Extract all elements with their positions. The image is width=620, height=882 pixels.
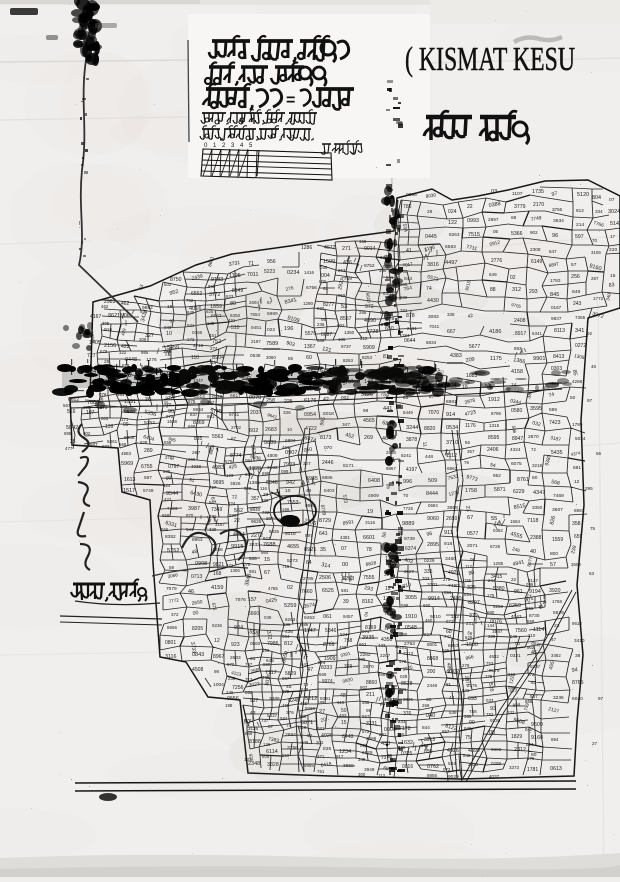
svg-text:681: 681	[573, 465, 581, 471]
svg-text:806: 806	[319, 279, 327, 284]
svg-text:3024: 3024	[608, 209, 620, 215]
svg-text:1517: 1517	[123, 488, 135, 494]
svg-text:8868: 8868	[427, 656, 438, 662]
svg-text:1829: 1829	[511, 734, 522, 740]
svg-text:277: 277	[102, 444, 110, 449]
svg-text:256: 256	[571, 274, 580, 280]
svg-text:4983: 4983	[212, 465, 224, 471]
svg-text:758: 758	[344, 638, 353, 644]
svg-text:357: 357	[467, 449, 475, 454]
svg-text:488: 488	[261, 498, 269, 503]
svg-text:2785: 2785	[303, 576, 314, 581]
svg-text:279: 279	[462, 663, 470, 668]
svg-text:68: 68	[511, 215, 517, 221]
svg-text:894: 894	[551, 737, 559, 742]
svg-text:06: 06	[470, 557, 476, 562]
svg-text:4090: 4090	[364, 318, 376, 324]
svg-text:8179: 8179	[489, 668, 500, 673]
svg-text:584: 584	[280, 716, 288, 721]
svg-text:78: 78	[366, 547, 372, 553]
svg-text:923: 923	[231, 642, 240, 648]
svg-text:9618: 9618	[572, 621, 582, 626]
svg-text:300: 300	[358, 772, 366, 777]
svg-text:848: 848	[464, 726, 472, 731]
svg-text:1500: 1500	[466, 642, 478, 648]
svg-text:881: 881	[207, 414, 215, 419]
svg-text:8795: 8795	[491, 411, 502, 416]
svg-text:928: 928	[140, 440, 148, 445]
svg-text:85: 85	[571, 369, 578, 376]
svg-text:491: 491	[399, 645, 407, 650]
svg-text:9901: 9901	[533, 356, 545, 362]
svg-text:46: 46	[591, 364, 597, 369]
svg-text:287: 287	[192, 450, 200, 456]
svg-text:1350: 1350	[344, 330, 355, 335]
svg-text:155: 155	[464, 578, 472, 583]
svg-text:3772: 3772	[209, 292, 220, 298]
svg-text:669: 669	[319, 672, 327, 677]
svg-text:169: 169	[262, 648, 270, 653]
svg-text:737: 737	[261, 718, 269, 723]
svg-text:324: 324	[228, 501, 236, 506]
svg-text:53: 53	[341, 304, 347, 310]
svg-text:7256: 7256	[232, 685, 244, 691]
svg-text:5437: 5437	[267, 713, 278, 718]
svg-text:835: 835	[194, 436, 203, 442]
svg-text:539: 539	[449, 710, 457, 715]
svg-text:598: 598	[401, 603, 409, 608]
svg-text:03: 03	[491, 189, 497, 195]
svg-text:659: 659	[574, 534, 583, 540]
svg-text:028: 028	[400, 674, 408, 679]
svg-text:3373: 3373	[509, 765, 520, 770]
svg-text:3948: 3948	[364, 767, 375, 772]
svg-text:334: 334	[595, 209, 603, 214]
svg-text:5576: 5576	[305, 331, 316, 337]
svg-text:59: 59	[169, 565, 175, 570]
svg-text:514: 514	[610, 221, 619, 227]
svg-text:5435: 5435	[551, 450, 563, 456]
svg-text:727: 727	[87, 353, 96, 359]
svg-text:285: 285	[359, 310, 367, 315]
svg-text:3826: 3826	[230, 481, 241, 486]
svg-text:595: 595	[163, 469, 171, 474]
svg-text:9183: 9183	[211, 277, 223, 283]
svg-text:02: 02	[510, 275, 516, 281]
svg-text:8241: 8241	[401, 453, 412, 458]
svg-text:332: 332	[507, 710, 515, 715]
svg-text:3055: 3055	[405, 595, 417, 601]
svg-text:3634: 3634	[553, 218, 564, 224]
svg-text:567: 567	[63, 403, 71, 408]
svg-text:271: 271	[342, 246, 351, 252]
svg-text:3710: 3710	[446, 440, 458, 446]
svg-text:2895: 2895	[427, 542, 439, 548]
svg-text:9014: 9014	[364, 246, 376, 252]
svg-text:379: 379	[469, 613, 478, 619]
svg-text:=: =	[286, 92, 295, 109]
svg-text:80: 80	[532, 475, 538, 481]
svg-text:679: 679	[100, 349, 108, 354]
svg-text:575: 575	[225, 459, 233, 464]
svg-text:05: 05	[493, 229, 499, 234]
svg-text:1367: 1367	[304, 344, 316, 350]
svg-text:02: 02	[287, 585, 293, 591]
svg-text:812: 812	[576, 208, 584, 213]
svg-text:2071: 2071	[467, 543, 478, 549]
svg-text:8621: 8621	[108, 313, 120, 319]
svg-text:033: 033	[486, 698, 494, 703]
svg-text:5909: 5909	[363, 345, 375, 351]
svg-text:775: 775	[485, 674, 493, 679]
svg-text:7118: 7118	[527, 518, 538, 524]
svg-text:4043: 4043	[511, 614, 522, 619]
svg-text:641: 641	[319, 531, 328, 537]
svg-text:09: 09	[123, 422, 129, 428]
svg-text:97: 97	[587, 398, 593, 403]
svg-text:236: 236	[317, 322, 325, 327]
svg-text:895: 895	[64, 431, 72, 436]
svg-text:376: 376	[403, 711, 412, 717]
svg-text:713: 713	[245, 677, 253, 682]
svg-text:8730: 8730	[529, 613, 540, 618]
svg-text:4159: 4159	[211, 585, 223, 591]
svg-text:60: 60	[306, 355, 312, 361]
svg-text:112: 112	[465, 564, 473, 569]
svg-text:3486: 3486	[269, 696, 280, 702]
svg-text:742: 742	[444, 634, 452, 639]
svg-text:703: 703	[422, 576, 430, 581]
svg-text:7725: 7725	[403, 506, 414, 511]
svg-text:376: 376	[286, 710, 294, 715]
svg-text:914: 914	[446, 412, 455, 418]
svg-text:6259: 6259	[509, 603, 521, 609]
svg-text:4347: 4347	[533, 490, 545, 496]
svg-text:2406: 2406	[487, 447, 499, 453]
svg-text:1004: 1004	[213, 682, 224, 688]
svg-text:107: 107	[86, 410, 95, 416]
svg-text:927: 927	[250, 698, 259, 704]
svg-text:0843: 0843	[192, 652, 204, 658]
svg-text:741: 741	[209, 514, 217, 519]
svg-text:079: 079	[243, 562, 251, 567]
svg-text:200: 200	[427, 669, 436, 675]
svg-text:275: 275	[443, 577, 451, 582]
svg-text:295: 295	[585, 486, 593, 491]
svg-text:27: 27	[592, 741, 598, 746]
svg-text:8967: 8967	[213, 654, 224, 660]
svg-text:291: 291	[379, 732, 387, 737]
svg-text:1290: 1290	[303, 301, 314, 306]
svg-text:050: 050	[360, 743, 368, 748]
svg-text:44: 44	[449, 695, 455, 700]
svg-text:8947: 8947	[512, 436, 523, 442]
svg-text:81: 81	[446, 682, 452, 687]
svg-text:6229: 6229	[513, 489, 525, 495]
svg-text:6981: 6981	[446, 399, 457, 405]
svg-text:1107: 1107	[512, 191, 523, 197]
svg-text:8769: 8769	[323, 642, 335, 648]
svg-text:3859: 3859	[343, 763, 354, 769]
svg-text:1781: 1781	[527, 767, 538, 773]
svg-text:287: 287	[591, 276, 599, 281]
svg-text:541: 541	[186, 527, 194, 532]
svg-text:902: 902	[530, 230, 538, 235]
svg-text:0907: 0907	[285, 450, 297, 456]
svg-text:57: 57	[550, 562, 556, 568]
svg-text:15: 15	[610, 273, 616, 279]
svg-text:566: 566	[119, 442, 127, 447]
svg-text:3301: 3301	[427, 582, 438, 588]
svg-text:2308: 2308	[530, 247, 541, 252]
svg-text:67: 67	[467, 515, 473, 521]
svg-text:211: 211	[366, 692, 375, 698]
svg-text:75: 75	[590, 526, 596, 531]
svg-text:72: 72	[531, 447, 536, 452]
svg-text:067: 067	[282, 676, 290, 681]
svg-text:689: 689	[317, 338, 325, 343]
svg-text:5346: 5346	[325, 628, 336, 634]
svg-text:312: 312	[512, 287, 521, 293]
svg-text:35: 35	[70, 439, 76, 445]
svg-text:144: 144	[487, 623, 495, 628]
svg-text:9102: 9102	[447, 669, 459, 675]
svg-text:660: 660	[423, 603, 431, 608]
svg-text:693: 693	[468, 696, 477, 702]
svg-text:8413: 8413	[553, 354, 564, 360]
svg-text:75: 75	[465, 735, 471, 741]
svg-text:597: 597	[144, 475, 152, 480]
svg-text:6552: 6552	[191, 291, 202, 297]
svg-text:12: 12	[574, 479, 580, 485]
svg-text:18: 18	[167, 304, 173, 310]
svg-text:3350: 3350	[532, 505, 543, 510]
svg-text:804: 804	[592, 195, 601, 201]
svg-text:448: 448	[425, 454, 433, 460]
svg-text:981: 981	[249, 569, 257, 574]
svg-text:236: 236	[228, 676, 236, 681]
svg-text:460: 460	[425, 618, 433, 623]
svg-text:658: 658	[162, 513, 170, 518]
svg-text:3116: 3116	[365, 520, 375, 525]
svg-text:842: 842	[463, 753, 471, 758]
svg-text:5677: 5677	[469, 344, 480, 350]
svg-text:335: 335	[424, 569, 433, 575]
svg-text:647: 647	[549, 249, 557, 254]
svg-text:668: 668	[188, 424, 196, 429]
svg-text:175: 175	[487, 593, 495, 598]
svg-text:433: 433	[378, 643, 386, 648]
svg-text:263: 263	[338, 268, 346, 273]
svg-text:9915: 9915	[231, 544, 243, 550]
svg-text:98: 98	[214, 669, 220, 674]
svg-text:8601: 8601	[427, 642, 438, 647]
svg-text:1315: 1315	[489, 423, 500, 428]
svg-text:23: 23	[464, 505, 471, 512]
svg-text:867: 867	[442, 729, 450, 734]
svg-text:7469: 7469	[553, 493, 564, 499]
svg-text:71: 71	[248, 261, 254, 267]
svg-text:3888: 3888	[366, 736, 377, 741]
svg-text:17: 17	[610, 234, 616, 239]
svg-text:3607: 3607	[552, 507, 563, 513]
svg-text:0993: 0993	[467, 218, 479, 224]
svg-text:581: 581	[341, 588, 349, 593]
svg-text:061: 061	[323, 614, 332, 620]
svg-text:3920: 3920	[549, 588, 561, 594]
svg-text:2870: 2870	[528, 434, 539, 440]
svg-text:5120: 5120	[577, 192, 589, 198]
svg-text:3779: 3779	[514, 204, 526, 210]
svg-text:7365: 7365	[575, 315, 586, 320]
svg-text:477: 477	[65, 446, 73, 451]
svg-text:961: 961	[514, 589, 523, 595]
svg-text:365: 365	[464, 714, 472, 719]
svg-text:9867: 9867	[386, 466, 396, 471]
svg-text:7515: 7515	[468, 232, 480, 238]
svg-text:567: 567	[209, 500, 217, 505]
svg-text:179: 179	[462, 677, 470, 682]
svg-text:8761: 8761	[517, 477, 529, 483]
svg-text:5969: 5969	[121, 461, 133, 467]
svg-text:07: 07	[609, 197, 615, 203]
svg-text:4655: 4655	[287, 544, 299, 550]
svg-text:7660: 7660	[301, 589, 313, 595]
svg-text:166: 166	[282, 507, 290, 512]
svg-text:6829: 6829	[362, 750, 373, 755]
svg-text:308: 308	[139, 337, 147, 342]
svg-text:684: 684	[464, 592, 472, 597]
svg-text:929: 929	[244, 486, 252, 491]
svg-text:289: 289	[144, 448, 153, 454]
svg-text:8956: 8956	[427, 773, 438, 778]
svg-text:059: 059	[338, 293, 346, 298]
svg-text:989: 989	[263, 662, 271, 667]
svg-text:516: 516	[67, 409, 76, 415]
svg-text:269: 269	[422, 703, 430, 708]
svg-text:802: 802	[337, 323, 345, 328]
svg-text:7213: 7213	[403, 651, 414, 656]
svg-text:1306: 1306	[230, 568, 240, 573]
svg-text:558: 558	[527, 619, 535, 624]
svg-text:845: 845	[550, 292, 559, 298]
svg-text:094: 094	[245, 458, 253, 463]
svg-text:597: 597	[575, 234, 584, 240]
svg-text:231: 231	[466, 621, 474, 626]
svg-text:327: 327	[145, 333, 154, 339]
svg-text:0392: 0392	[493, 528, 503, 533]
svg-text:4381: 4381	[340, 535, 351, 540]
svg-text:207: 207	[266, 516, 274, 521]
svg-text:220: 220	[609, 247, 617, 253]
svg-text:139: 139	[105, 424, 114, 430]
svg-text:3935: 3935	[362, 635, 374, 641]
svg-text:5353: 5353	[144, 420, 155, 426]
svg-text:8113: 8113	[554, 328, 565, 334]
svg-text:7070: 7070	[428, 410, 439, 416]
svg-text:0167: 0167	[551, 305, 562, 310]
svg-text:366: 366	[378, 672, 386, 677]
svg-text:5449: 5449	[403, 410, 413, 415]
svg-text:98: 98	[363, 408, 369, 413]
svg-text:6834: 6834	[426, 340, 437, 345]
svg-text:5034: 5034	[575, 436, 586, 441]
svg-text:072: 072	[443, 767, 451, 772]
svg-text:22: 22	[234, 518, 240, 524]
svg-text:0762: 0762	[427, 764, 439, 770]
svg-text:66: 66	[465, 440, 470, 445]
svg-text:071: 071	[362, 629, 370, 634]
svg-text:244: 244	[488, 578, 496, 583]
svg-text:358: 358	[572, 521, 581, 527]
svg-text:55: 55	[288, 356, 294, 361]
svg-text:0272: 0272	[575, 343, 586, 349]
svg-text:105: 105	[338, 337, 346, 342]
svg-text:0970: 0970	[249, 395, 261, 401]
svg-text:7423: 7423	[549, 420, 561, 426]
svg-text:7555: 7555	[363, 575, 375, 581]
svg-text:055: 055	[245, 690, 253, 695]
svg-text:61: 61	[323, 286, 329, 291]
svg-text:8263: 8263	[449, 232, 460, 237]
svg-text:568: 568	[362, 700, 370, 705]
svg-text:67: 67	[264, 570, 270, 576]
svg-text:22: 22	[511, 577, 517, 582]
svg-text:8750: 8750	[170, 277, 182, 283]
svg-text:57: 57	[571, 262, 577, 268]
svg-text:504: 504	[340, 632, 348, 637]
svg-text:341: 341	[575, 328, 584, 334]
svg-text:624: 624	[163, 483, 171, 488]
svg-text:3116: 3116	[165, 654, 176, 660]
svg-text:0644: 0644	[404, 338, 416, 344]
svg-text:0560: 0560	[250, 641, 261, 646]
svg-text:666: 666	[188, 457, 196, 462]
svg-text:3878: 3878	[406, 437, 417, 443]
svg-text:1285: 1285	[493, 561, 504, 566]
svg-text:2776: 2776	[491, 258, 502, 264]
svg-text:9737: 9737	[341, 344, 352, 349]
svg-text:4038: 4038	[191, 464, 202, 469]
svg-text:1416: 1416	[304, 270, 315, 275]
svg-text:1613: 1613	[124, 477, 135, 483]
svg-text:9453: 9453	[304, 615, 315, 621]
svg-text:12: 12	[214, 638, 220, 644]
svg-text:9752: 9752	[364, 263, 375, 268]
svg-text:4158: 4158	[511, 369, 523, 375]
svg-text:9837: 9837	[551, 316, 562, 321]
svg-text:83: 83	[608, 282, 615, 289]
svg-text:478: 478	[399, 659, 407, 664]
svg-text:072: 072	[446, 619, 454, 624]
svg-text:3060: 3060	[266, 355, 276, 360]
svg-text:800: 800	[550, 551, 558, 557]
svg-text:4926: 4926	[447, 748, 459, 754]
svg-text:229: 229	[488, 634, 496, 639]
svg-text:372: 372	[171, 612, 179, 617]
svg-text:8963: 8963	[192, 537, 203, 542]
svg-text:4809: 4809	[267, 453, 278, 458]
svg-text:5018: 5018	[285, 531, 296, 537]
svg-text:270: 270	[165, 455, 173, 460]
svg-text:498: 498	[339, 645, 347, 650]
svg-text:979: 979	[188, 399, 196, 404]
svg-text:8382: 8382	[165, 534, 176, 540]
svg-text:63: 63	[589, 571, 595, 576]
svg-text:003: 003	[101, 416, 109, 421]
svg-text:0335: 0335	[401, 751, 412, 757]
svg-text:595: 595	[549, 407, 557, 413]
